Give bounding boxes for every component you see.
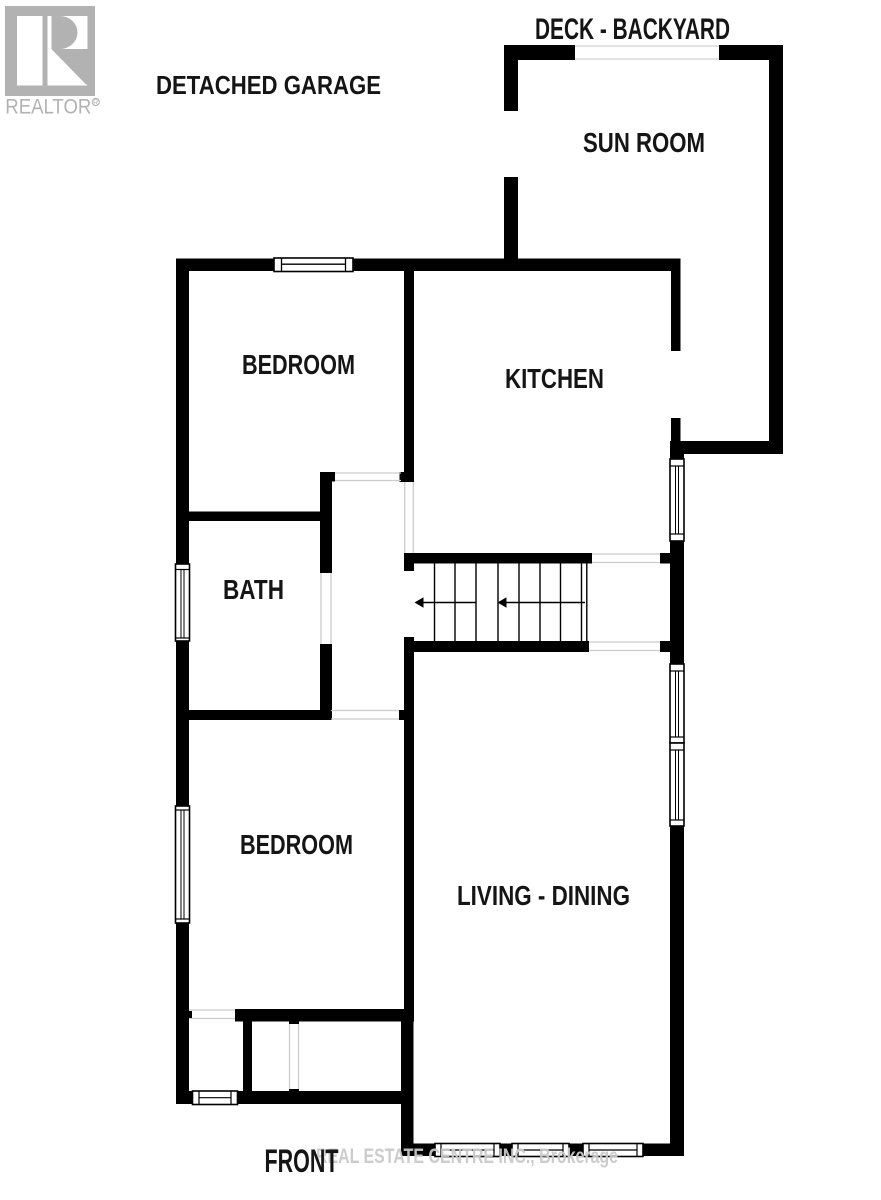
svg-text:LIVING - DINING: LIVING - DINING <box>457 880 630 911</box>
svg-text:BEDROOM: BEDROOM <box>242 349 355 380</box>
svg-text:DETACHED GARAGE: DETACHED GARAGE <box>156 70 381 100</box>
svg-text:DECK - BACKYARD: DECK - BACKYARD <box>535 13 730 46</box>
svg-text:BATH: BATH <box>223 574 284 605</box>
svg-text:SUN ROOM: SUN ROOM <box>583 127 705 158</box>
svg-text:REALTOR: REALTOR <box>5 96 91 119</box>
svg-text:BEDROOM: BEDROOM <box>240 829 353 860</box>
svg-text:R: R <box>93 100 98 107</box>
svg-text:REAL ESTATE CENTRE INC., Broke: REAL ESTATE CENTRE INC., Brokerage <box>316 1144 618 1168</box>
svg-text:KITCHEN: KITCHEN <box>505 363 604 394</box>
svg-text:FRONT: FRONT <box>265 1143 339 1179</box>
